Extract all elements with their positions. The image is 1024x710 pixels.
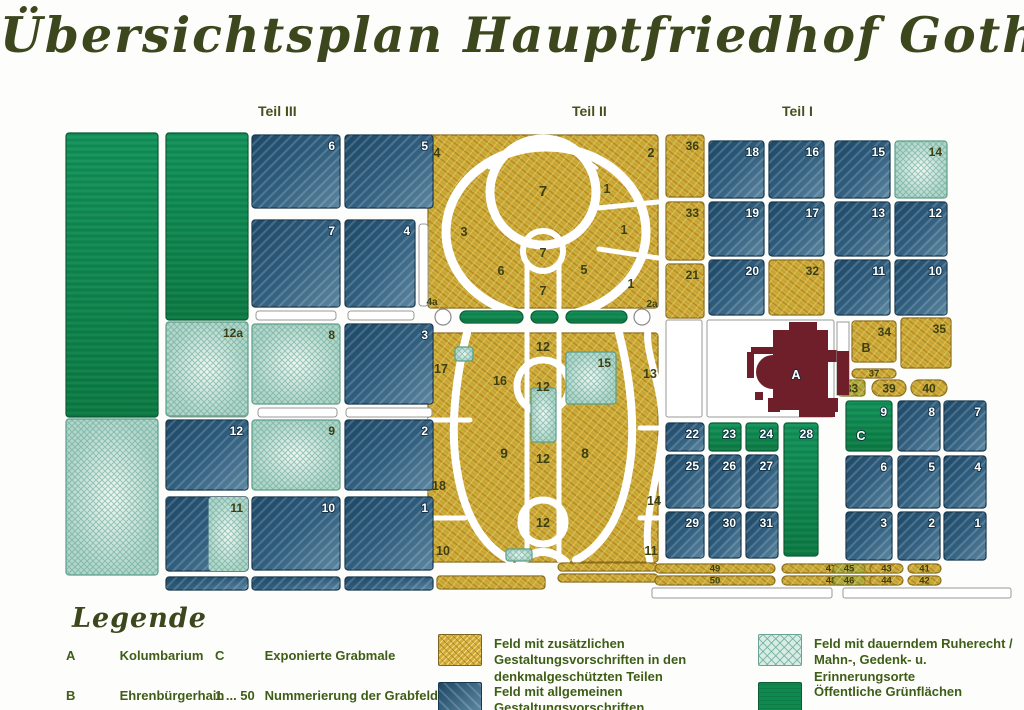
legend-swatch-blue (438, 682, 482, 710)
map-area-label-B: B (861, 341, 870, 355)
legend-abbr-nummerierung: 1 ... 50 Nummerierung der Grabfelder (215, 688, 450, 703)
map-field-2: 2 (898, 512, 940, 560)
legend-abbr-key: C (215, 648, 261, 663)
map-field-gold (437, 576, 545, 589)
map-area-label-3: 3 (461, 225, 468, 239)
map-field-label: 12 (929, 206, 943, 220)
map-area-label-18: 18 (432, 479, 446, 493)
map-area-label-4: 4 (434, 146, 441, 160)
map-field-label: 42 (919, 576, 930, 587)
map-field-teal (531, 388, 556, 442)
legend-abbr-key: B (66, 688, 116, 703)
map-field-7: 7 (252, 220, 340, 307)
map-field-label: 36 (686, 139, 700, 153)
map-field-11: 11 (166, 497, 248, 571)
map-field-12: 12 (166, 420, 248, 490)
map-field-teal (506, 549, 532, 561)
map-field-4: 4 (944, 456, 986, 508)
map-field-label: 6 (328, 139, 335, 153)
map-field-label: 19 (746, 206, 760, 220)
map-field-27: 27 (746, 455, 778, 508)
map-field-label: 22 (686, 427, 700, 441)
map-field-label: 24 (760, 427, 774, 441)
legend-swatch-label: Feld mit dauerndem Ruherecht / Mahn-, Ge… (814, 634, 1024, 685)
map-area-label-10: 10 (436, 544, 450, 558)
map-field-label: 4 (974, 460, 981, 474)
page: Übersichtsplan Hauptfriedhof Gotha Teil … (0, 0, 1024, 710)
legend-heading: Legende (72, 603, 207, 634)
legend-item-teal: Feld mit dauerndem Ruherecht / Mahn-, Ge… (758, 634, 1024, 685)
map-field-label: 26 (723, 459, 737, 473)
map-field-label: 29 (686, 516, 700, 530)
map-field-44: 44 (870, 576, 903, 587)
map-field-45: 45 (833, 564, 865, 575)
legend-swatch-gold (438, 634, 482, 666)
building-court-west (666, 320, 702, 417)
map-area-label-7: 7 (540, 284, 547, 298)
map-field-label: 27 (760, 459, 774, 473)
map-field-20: 20 (709, 260, 764, 315)
building-apse (756, 355, 790, 389)
map-field-label: 12a (223, 326, 243, 340)
map-field-4: 4 (345, 220, 415, 307)
map-area-label-1: 1 (621, 223, 628, 237)
map-field-30: 30 (709, 512, 741, 558)
map-field-white (634, 309, 650, 325)
map-field-gold (558, 574, 658, 582)
map-field-9: 9 (846, 401, 892, 451)
map-field-gold (558, 563, 658, 571)
legend-swatch-label: Öffentliche Grünflächen (814, 682, 962, 700)
map-field-2: 2 (345, 420, 433, 490)
map-field-15: 15 (566, 352, 616, 404)
map-field-green (166, 133, 248, 320)
map-field-green (566, 311, 627, 323)
map-field-label: 2 (421, 424, 428, 438)
map-field-label: 5 (928, 460, 935, 474)
map-field-label: 15 (598, 356, 612, 370)
map-field-3: 3 (846, 512, 892, 560)
map-field-label: 3 (880, 516, 887, 530)
map-field-label: 17 (806, 206, 820, 220)
legend-swatch-label: Feld mit allgemeinen Gestaltungsvorschri… (494, 682, 748, 710)
map-field-label: 8 (928, 405, 935, 419)
map-field-9: 9 (252, 420, 340, 490)
map-field-label: 16 (806, 145, 820, 159)
legend-abbr-label: Nummerierung der Grabfelder (265, 688, 451, 703)
map-field-label: 10 (929, 264, 943, 278)
building-wing (789, 322, 817, 334)
map-area-label-2a: 2a (646, 299, 658, 310)
map-field-22: 22 (666, 423, 704, 451)
map-field-16: 16 (769, 141, 824, 198)
map-field-5: 5 (898, 456, 940, 508)
map-field-17: 17 (769, 202, 824, 256)
map-field-49: 49 (655, 564, 775, 575)
map-border-box (843, 588, 1011, 598)
map-field-46: 46 (833, 576, 865, 587)
map-field-8: 8 (898, 401, 940, 451)
building-bar (837, 351, 849, 395)
map-field-3: 3 (345, 324, 433, 404)
map-field-blue (166, 577, 248, 590)
building-wing (826, 350, 838, 362)
map-field-25: 25 (666, 455, 704, 508)
plot-bar (346, 408, 432, 417)
map-field-35: 35 (901, 318, 951, 368)
map-field-label: 9 (880, 405, 887, 419)
map-field-label: 11 (872, 264, 885, 278)
legend-abbr-kolumbarium: A Kolumbarium (66, 648, 240, 663)
map-field-19: 19 (709, 202, 764, 256)
map-area-label-8: 8 (581, 445, 589, 461)
map-field-label: 31 (760, 516, 774, 530)
map-field-50: 50 (655, 576, 775, 587)
map-field-42: 42 (908, 576, 941, 587)
map-area-label-13: 13 (643, 367, 657, 381)
map-field-teal (455, 347, 473, 361)
map-field-blue (252, 577, 340, 590)
map-field-24: 24 (746, 423, 778, 451)
legend-swatch-teal (758, 634, 802, 666)
building-wing (755, 392, 763, 400)
map-field-label: 41 (919, 564, 930, 575)
map-field-8: 8 (252, 324, 340, 404)
map-field-teal (66, 419, 158, 575)
map-field-label: 50 (710, 576, 721, 587)
map-field-label: 32 (806, 264, 820, 278)
map-field-31: 31 (746, 512, 778, 558)
map-area-label-1: 1 (628, 277, 635, 291)
building-wing (768, 398, 780, 412)
map-field-label: 25 (686, 459, 700, 473)
map-field-1: 1 (345, 497, 433, 570)
map-field-10: 10 (252, 497, 340, 570)
map-field-label: 46 (844, 576, 855, 587)
map-field-label: 45 (844, 564, 855, 575)
map-area-label-12: 12 (536, 516, 550, 530)
map-field-label: 44 (881, 576, 892, 587)
map-field-23: 23 (709, 423, 741, 451)
kolumbarium-building (666, 320, 849, 417)
map-field-label: 1 (421, 501, 428, 515)
map-field-6: 6 (846, 456, 892, 508)
map-field-39: 39 (872, 380, 906, 396)
map-area-label-A: A (791, 368, 800, 382)
map-area-label-2: 2 (648, 146, 655, 160)
map-field-36: 36 (666, 135, 704, 197)
map-field-blue (345, 577, 433, 590)
map-field-label: 30 (723, 516, 737, 530)
legend-abbr-exponierte-grabmale: C Exponierte Grabmale (215, 648, 395, 663)
building-wing (816, 398, 838, 412)
map-field-37: 37 (852, 369, 896, 380)
map-field-label: 7 (328, 224, 335, 238)
map-area-label-17: 17 (434, 362, 448, 376)
map-area-label-12: 12 (536, 452, 550, 466)
map-field-label: 18 (746, 145, 760, 159)
legend-abbr-label: Exponierte Grabmale (265, 648, 396, 663)
map-field-label: 28 (800, 427, 814, 441)
map-area-label-7: 7 (540, 246, 547, 260)
map-field-label: 14 (929, 145, 943, 159)
map-field-label: 20 (746, 264, 760, 278)
map-area-label-12: 12 (536, 380, 550, 394)
plot-bar (256, 311, 336, 320)
map-field-label: 37 (869, 369, 880, 380)
map-field-5: 5 (345, 135, 433, 208)
map-field-43: 43 (870, 564, 903, 575)
map-field-label: 35 (933, 322, 947, 336)
map-field-7: 7 (944, 401, 986, 451)
map-area-label-5: 5 (581, 263, 588, 277)
map-field-label: 49 (710, 564, 721, 575)
map-field-41: 41 (908, 564, 941, 575)
legend-item-gold: Feld mit zusätzlichen Gestaltungsvorschr… (438, 634, 748, 685)
map-field-green (531, 311, 558, 323)
map-field-34: 34 (852, 321, 896, 362)
map-area-label-1: 1 (604, 182, 611, 196)
map-field-18: 18 (709, 141, 764, 198)
map-area-label-9: 9 (500, 445, 508, 461)
building-wing (747, 352, 754, 378)
map-field-label: 9 (328, 424, 335, 438)
map-field-green (460, 311, 523, 323)
map-area-label-11: 11 (644, 544, 657, 558)
map-field-label: 40 (922, 382, 936, 396)
map-field-label: 43 (881, 564, 892, 575)
map-area-label-12: 12 (536, 340, 550, 354)
map-field-26: 26 (709, 455, 741, 508)
map-field-label: 3 (421, 328, 428, 342)
map-field-label: 5 (421, 139, 428, 153)
map-field-label: 2 (928, 516, 935, 530)
map-area-label-16: 16 (493, 374, 507, 388)
map-field-6: 6 (252, 135, 340, 208)
map-field-14: 14 (895, 141, 947, 198)
map-field-label: 13 (872, 206, 886, 220)
map-area-label-4a: 4a (426, 297, 438, 308)
map-area-label-6: 6 (498, 264, 505, 278)
map-field-13: 13 (835, 202, 890, 256)
legend-item-green: Öffentliche Grünflächen (758, 682, 1024, 710)
legend-item-blue: Feld mit allgemeinen Gestaltungsvorschri… (438, 682, 748, 710)
building-wing (751, 347, 773, 354)
map-field-label: 21 (686, 268, 700, 282)
map-field-label: 10 (322, 501, 336, 515)
map-field-white (435, 309, 451, 325)
map-field-32: 32 (769, 260, 824, 315)
map-field-40: 40 (911, 380, 947, 396)
map-field-33: 33 (666, 202, 704, 260)
map-field-12: 12 (895, 202, 947, 256)
map-field-29: 29 (666, 512, 704, 558)
map-field-label: 6 (880, 460, 887, 474)
plot-bar (419, 224, 428, 306)
map-field-28: 28 (784, 423, 818, 556)
legend-abbr-key: 1 ... 50 (215, 688, 261, 703)
map-area-label-14: 14 (647, 494, 661, 508)
map-field-10: 10 (895, 260, 947, 315)
map-field-label: 39 (882, 382, 896, 396)
building-wing (799, 410, 835, 417)
map-border-box (652, 588, 832, 598)
map-field-label: 15 (872, 145, 886, 159)
map-field-label: 1 (974, 516, 981, 530)
map-field-label: 11 (230, 501, 243, 515)
map-field-label: 4 (403, 224, 410, 238)
legend-swatch-green (758, 682, 802, 710)
map-field-1: 1 (944, 512, 986, 560)
map-area-label-7: 7 (539, 183, 547, 200)
plot-bar (348, 311, 414, 320)
map-area-label-C: C (856, 429, 865, 443)
map-field-label: 33 (686, 206, 700, 220)
map-field-label: 8 (328, 328, 335, 342)
legend-swatch-label: Feld mit zusätzlichen Gestaltungsvorschr… (494, 634, 748, 685)
map-field-label: 34 (878, 325, 892, 339)
map-field-21: 21 (666, 264, 704, 318)
plot-bar (258, 408, 337, 417)
map-field-green (66, 133, 158, 417)
map-field-15: 15 (835, 141, 890, 198)
map-field-label: 12 (230, 424, 244, 438)
map-field-12a: 12a (166, 322, 248, 416)
map-field-11: 11 (835, 260, 890, 315)
legend-abbr-key: A (66, 648, 116, 663)
map-field-label: 7 (974, 405, 981, 419)
map-field-label: 23 (723, 427, 737, 441)
